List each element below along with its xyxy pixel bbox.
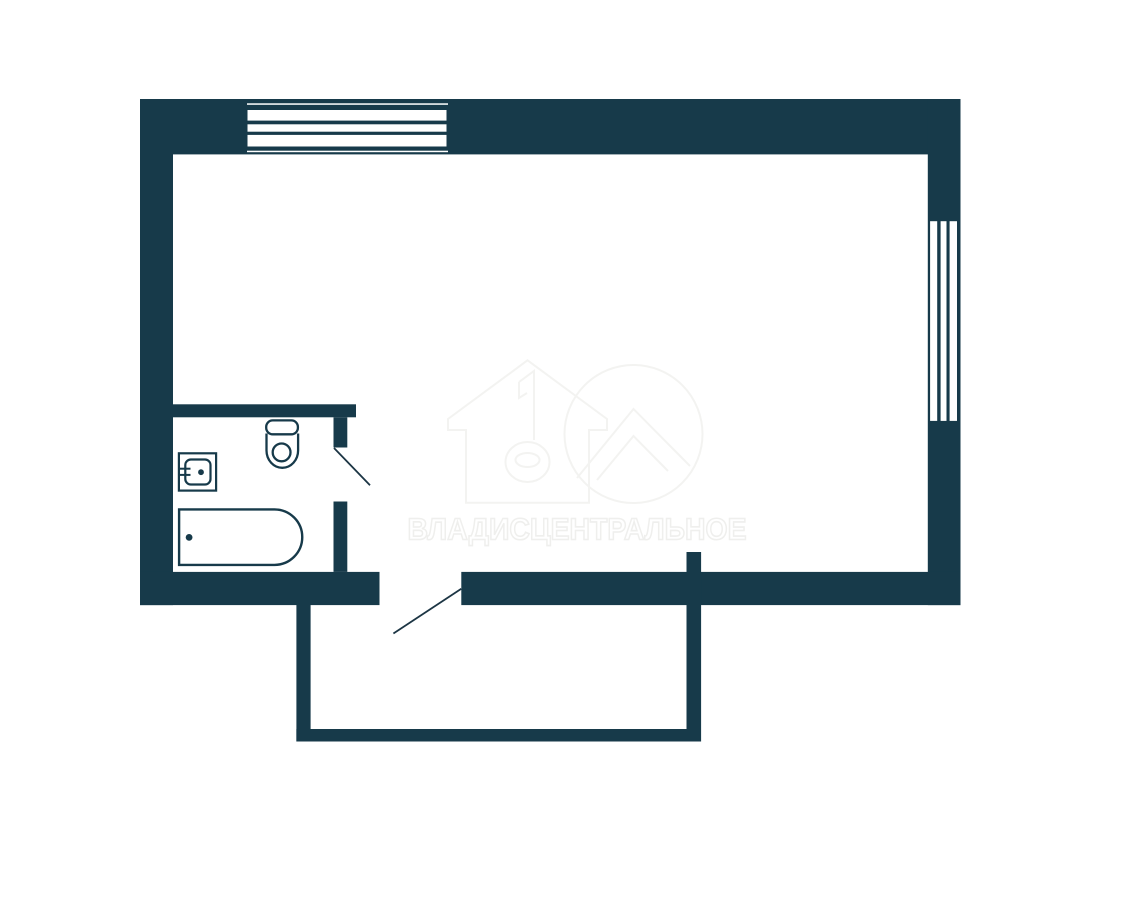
- svg-text:ВЛАДИСЦЕНТРАЛЬНОЕ: ВЛАДИСЦЕНТРАЛЬНОЕ: [408, 512, 747, 547]
